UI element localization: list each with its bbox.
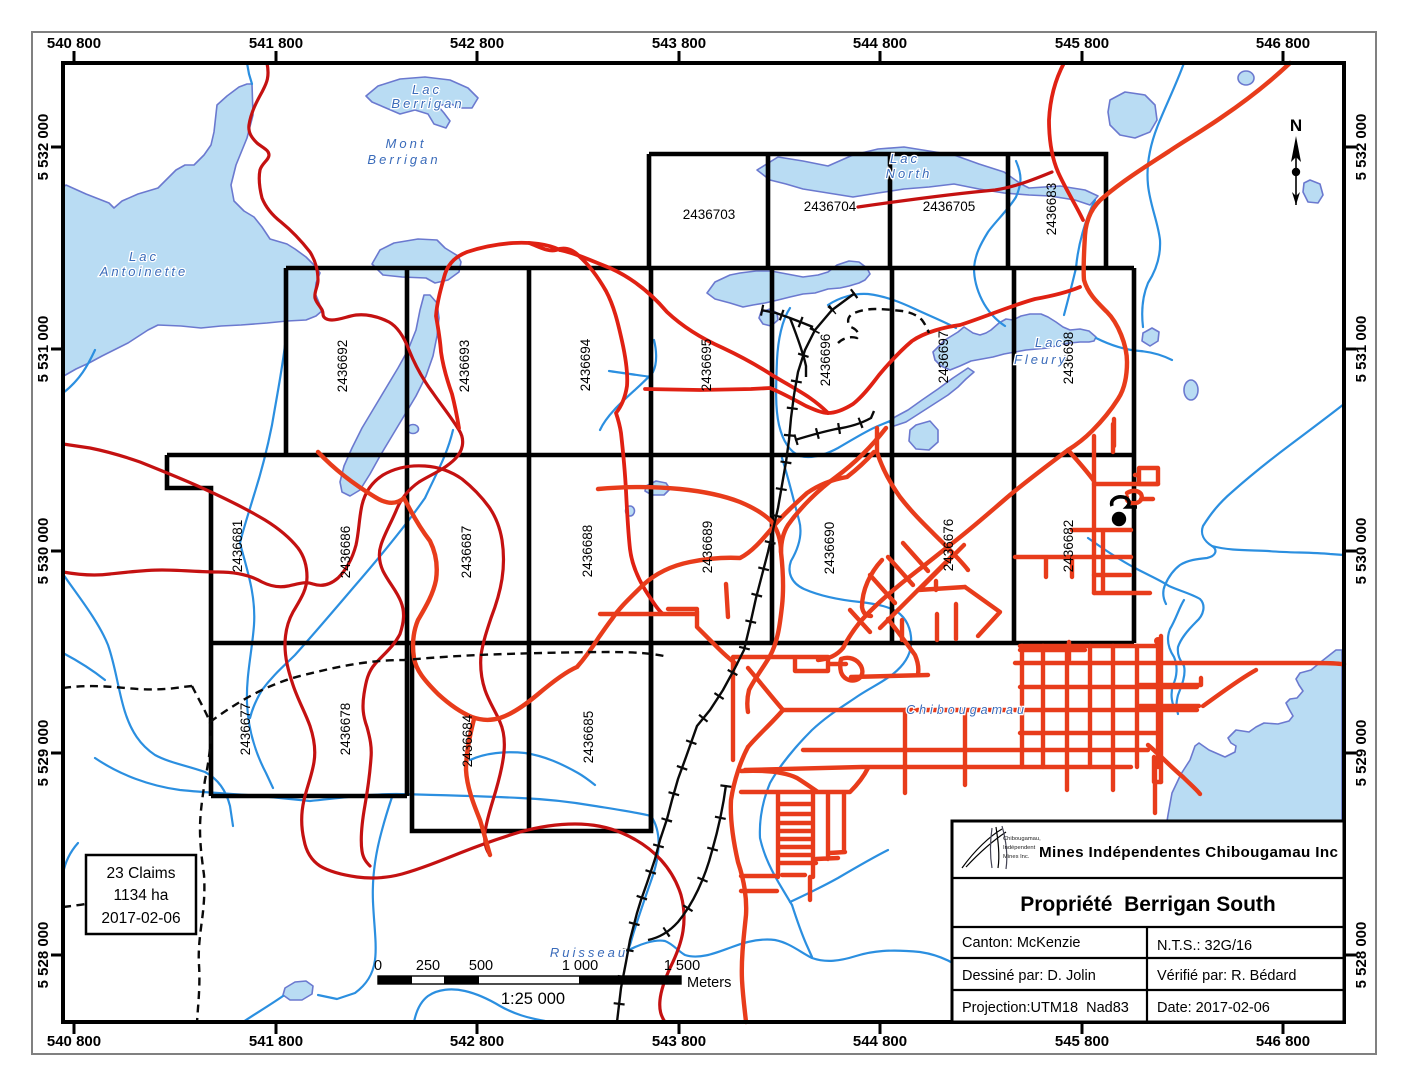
svg-text:2436704: 2436704: [804, 199, 857, 214]
svg-text:2436696: 2436696: [818, 334, 833, 387]
svg-text:Lac: Lac: [129, 249, 159, 264]
svg-text:Antoinette: Antoinette: [99, 264, 189, 279]
svg-text:250: 250: [416, 958, 440, 974]
svg-text:2436687: 2436687: [459, 526, 474, 579]
svg-text:Lac: Lac: [412, 82, 442, 97]
svg-text:546 800: 546 800: [1256, 1033, 1310, 1050]
svg-text:Indépendent: Indépendent: [1003, 845, 1036, 851]
svg-text:Projection:UTM18 Nad83: Projection:UTM18 Nad83: [962, 1000, 1129, 1016]
svg-text:2436697: 2436697: [936, 331, 951, 384]
svg-text:5 532 000: 5 532 000: [35, 114, 52, 181]
svg-text:542 800: 542 800: [450, 35, 504, 52]
svg-text:2436677: 2436677: [238, 703, 253, 756]
svg-text:Date: 2017-02-06: Date: 2017-02-06: [1157, 1000, 1270, 1016]
svg-text:Fleury: Fleury: [1014, 352, 1068, 367]
svg-text:2436682: 2436682: [1061, 520, 1076, 573]
svg-text:5 532 000: 5 532 000: [1353, 114, 1370, 181]
svg-text:541 800: 541 800: [249, 35, 303, 52]
svg-text:2436686: 2436686: [338, 526, 353, 579]
svg-text:2436681: 2436681: [230, 520, 245, 573]
svg-text:5 531 000: 5 531 000: [35, 316, 52, 383]
svg-text:545 800: 545 800: [1055, 1033, 1109, 1050]
svg-text:5 530 000: 5 530 000: [1353, 518, 1370, 585]
svg-text:Lac: Lac: [1035, 335, 1065, 350]
svg-text:Canton: McKenzie: Canton: McKenzie: [962, 935, 1080, 951]
svg-text:540 800: 540 800: [47, 1033, 101, 1050]
svg-text:Chibougamau,: Chibougamau,: [1003, 836, 1041, 842]
svg-text:Vérifié par: R. Bédard: Vérifié par: R. Bédard: [1157, 968, 1296, 984]
svg-text:542 800: 542 800: [450, 1033, 504, 1050]
svg-text:2436688: 2436688: [580, 525, 595, 578]
svg-text:5 529 000: 5 529 000: [35, 720, 52, 787]
svg-text:540 800: 540 800: [47, 35, 101, 52]
svg-text:1:25 000: 1:25 000: [501, 990, 565, 1008]
svg-text:543 800: 543 800: [652, 1033, 706, 1050]
svg-text:5 530 000: 5 530 000: [35, 518, 52, 585]
svg-text:546 800: 546 800: [1256, 35, 1310, 52]
svg-text:Lac: Lac: [890, 151, 920, 166]
svg-text:2436676: 2436676: [941, 519, 956, 572]
svg-text:2436684: 2436684: [460, 714, 475, 767]
svg-text:541 800: 541 800: [249, 1033, 303, 1050]
svg-text:5 528 000: 5 528 000: [35, 922, 52, 989]
svg-text:N.T.S.: 32G/16: N.T.S.: 32G/16: [1157, 938, 1252, 954]
svg-text:2436685: 2436685: [581, 711, 596, 764]
svg-text:543 800: 543 800: [652, 35, 706, 52]
svg-text:500: 500: [469, 958, 493, 974]
svg-text:2017-02-06: 2017-02-06: [101, 910, 180, 927]
svg-text:2436678: 2436678: [338, 703, 353, 756]
svg-text:23 Claims: 23 Claims: [107, 865, 176, 882]
svg-text:2436705: 2436705: [923, 199, 976, 214]
svg-text:1134 ha: 1134 ha: [114, 887, 169, 904]
svg-text:2436683: 2436683: [1044, 183, 1059, 236]
svg-text:5 528 000: 5 528 000: [1353, 922, 1370, 989]
svg-text:545 800: 545 800: [1055, 35, 1109, 52]
svg-text:5 531 000: 5 531 000: [1353, 316, 1370, 383]
svg-text:544 800: 544 800: [853, 35, 907, 52]
svg-text:2436695: 2436695: [699, 339, 714, 392]
svg-text:Meters: Meters: [687, 975, 731, 991]
svg-text:Berrigan: Berrigan: [367, 152, 440, 167]
svg-text:2436694: 2436694: [578, 338, 593, 391]
svg-text:N: N: [1290, 116, 1302, 135]
svg-text:1 500: 1 500: [664, 958, 700, 974]
svg-text:Chibougamau: Chibougamau: [906, 703, 1028, 717]
svg-text:2436692: 2436692: [335, 340, 350, 393]
svg-text:Berrigan: Berrigan: [391, 96, 464, 111]
svg-text:Mont: Mont: [386, 136, 427, 151]
svg-text:2436690: 2436690: [822, 522, 837, 575]
svg-text:5 529 000: 5 529 000: [1353, 720, 1370, 787]
svg-text:2436703: 2436703: [683, 207, 736, 222]
svg-text:0: 0: [374, 958, 382, 974]
svg-text:544 800: 544 800: [853, 1033, 907, 1050]
svg-text:1 000: 1 000: [562, 958, 598, 974]
svg-text:2436689: 2436689: [700, 521, 715, 574]
svg-text:Dessiné par: D. Jolin: Dessiné par: D. Jolin: [962, 968, 1096, 984]
svg-text:North: North: [886, 166, 933, 181]
svg-text:Propriété Berrigan South: Propriété Berrigan South: [1020, 893, 1276, 916]
svg-text:2436693: 2436693: [457, 340, 472, 393]
svg-text:Mines Inc.: Mines Inc.: [1003, 854, 1030, 860]
svg-text:Mines Indépendentes Chibougama: Mines Indépendentes Chibougamau Inc: [1039, 844, 1338, 861]
